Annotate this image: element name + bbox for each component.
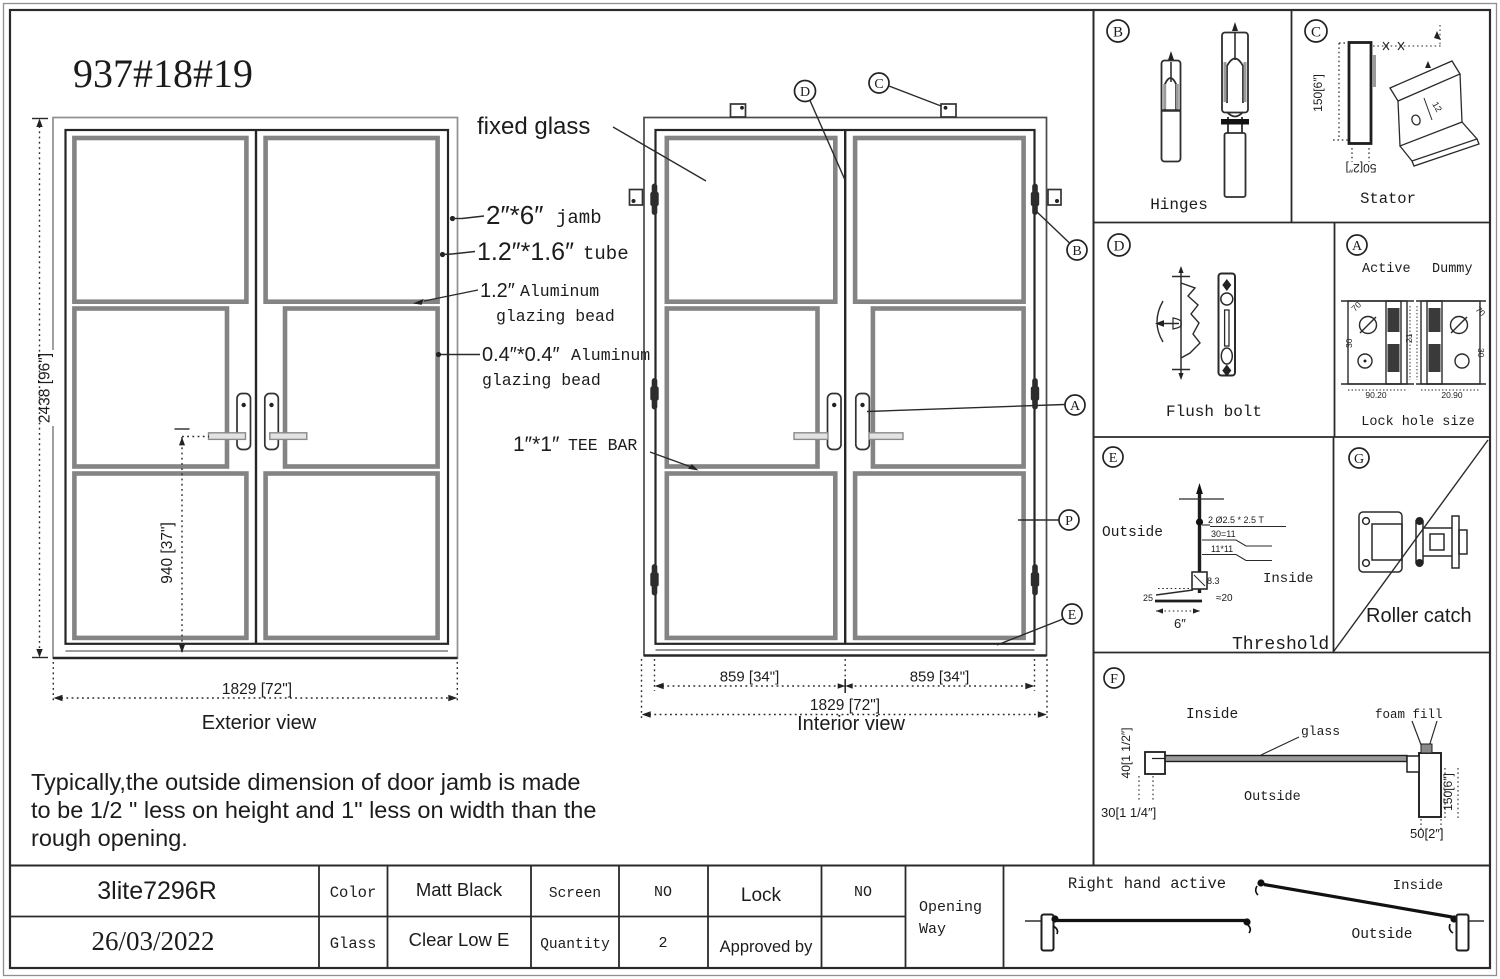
svg-text:859 [34"]: 859 [34"] — [910, 669, 970, 686]
svg-text:20.90: 20.90 — [1441, 390, 1463, 400]
svg-text:A: A — [1070, 399, 1081, 414]
svg-text:Lock hole size: Lock hole size — [1361, 415, 1474, 430]
svg-text:glazing bead: glazing bead — [482, 371, 601, 390]
svg-text:1.2″*1.6″: 1.2″*1.6″ — [477, 238, 574, 266]
svg-text:150[6″]: 150[6″] — [1441, 773, 1455, 811]
svg-text:Matt Black: Matt Black — [416, 879, 503, 900]
svg-text:Right hand active: Right hand active — [1068, 875, 1226, 893]
svg-text:Dummy: Dummy — [1432, 262, 1473, 277]
svg-text:C: C — [1311, 25, 1321, 41]
svg-text:Lock: Lock — [741, 885, 782, 906]
svg-text:2″*6″: 2″*6″ — [486, 200, 543, 230]
svg-text:Outside: Outside — [1102, 525, 1163, 541]
svg-text:D: D — [1114, 239, 1125, 255]
svg-text:11*11: 11*11 — [1211, 544, 1233, 554]
svg-text:Outside: Outside — [1244, 790, 1301, 805]
svg-text:8.3: 8.3 — [1207, 576, 1220, 586]
svg-text:937#18#19: 937#18#19 — [73, 51, 253, 96]
svg-text:50[2″]: 50[2″] — [1410, 826, 1444, 841]
svg-text:≈20: ≈20 — [1216, 593, 1233, 604]
svg-text:Active: Active — [1362, 262, 1411, 277]
svg-text:30=11: 30=11 — [1211, 529, 1236, 539]
svg-text:Exterior view: Exterior view — [202, 712, 317, 734]
svg-text:Approved by: Approved by — [720, 938, 813, 956]
svg-text:Typically,the outside dimensio: Typically,the outside dimension of door … — [31, 769, 581, 795]
svg-text:to be 1/2 " less on height and: to be 1/2 " less on height and 1" less o… — [31, 797, 596, 823]
svg-text:NO: NO — [654, 884, 672, 901]
svg-text:150[6″]: 150[6″] — [1311, 74, 1325, 112]
svg-text:foam fill: foam fill — [1375, 708, 1443, 722]
svg-text:2 Ø2.5 * 2.5 T: 2 Ø2.5 * 2.5 T — [1208, 515, 1264, 525]
svg-text:Opening: Opening — [919, 899, 982, 916]
svg-text:2438 [96"]: 2438 [96"] — [37, 353, 54, 423]
svg-text:25: 25 — [1143, 593, 1153, 603]
svg-text:Way: Way — [919, 921, 946, 938]
svg-text:Roller catch: Roller catch — [1366, 605, 1472, 627]
svg-text:TEE BAR: TEE BAR — [568, 436, 637, 455]
svg-text:3lite7296R: 3lite7296R — [97, 877, 217, 905]
svg-text:1″*1″: 1″*1″ — [513, 433, 560, 456]
svg-text:Inside: Inside — [1186, 707, 1238, 723]
svg-text:6″: 6″ — [1174, 616, 1186, 631]
svg-text:NO: NO — [854, 884, 872, 901]
svg-text:jamb: jamb — [556, 207, 602, 229]
svg-text:Inside: Inside — [1263, 571, 1313, 587]
svg-text:B: B — [1072, 244, 1081, 259]
svg-text:21: 21 — [1404, 333, 1414, 343]
svg-text:E: E — [1109, 451, 1118, 466]
svg-text:P: P — [1065, 514, 1073, 529]
svg-text:Hinges: Hinges — [1150, 196, 1208, 214]
svg-text:2: 2 — [658, 935, 667, 952]
svg-text:E: E — [1068, 608, 1077, 623]
svg-text:Quantity: Quantity — [540, 937, 610, 953]
svg-text:B: B — [1113, 25, 1123, 41]
svg-text:26/03/2022: 26/03/2022 — [91, 926, 214, 956]
svg-text:Flush bolt: Flush bolt — [1166, 403, 1262, 421]
svg-text:1829 [72"]: 1829 [72"] — [810, 697, 880, 714]
svg-text:glass: glass — [1301, 724, 1340, 739]
svg-text:A: A — [1352, 239, 1363, 254]
svg-text:Aluminum: Aluminum — [571, 346, 650, 365]
svg-text:tube: tube — [583, 243, 629, 265]
svg-text:rough opening.: rough opening. — [31, 825, 188, 851]
svg-text:Clear Low E: Clear Low E — [409, 929, 510, 950]
svg-text:Interior view: Interior view — [797, 713, 905, 735]
svg-text:Aluminum: Aluminum — [520, 282, 599, 301]
svg-text:F: F — [1110, 672, 1118, 687]
svg-text:D: D — [800, 85, 810, 100]
svg-text:859 [34"]: 859 [34"] — [720, 669, 780, 686]
svg-text:40[1 1/2″]: 40[1 1/2″] — [1119, 728, 1133, 779]
svg-text:1829 [72"]: 1829 [72"] — [222, 681, 292, 698]
svg-text:90.20: 90.20 — [1365, 390, 1387, 400]
svg-text:glazing bead: glazing bead — [496, 307, 615, 326]
svg-text:Inside: Inside — [1393, 878, 1443, 894]
svg-text:Color: Color — [330, 884, 377, 902]
svg-text:Glass: Glass — [330, 935, 377, 953]
svg-text:0.4″*0.4″: 0.4″*0.4″ — [482, 344, 560, 366]
svg-text:940 [37"]: 940 [37"] — [159, 522, 176, 584]
svg-text:30: 30 — [1344, 338, 1354, 348]
svg-text:30: 30 — [1476, 348, 1486, 358]
svg-text:30[1 1/4″]: 30[1 1/4″] — [1101, 805, 1156, 820]
svg-text:50[2″]: 50[2″] — [1346, 161, 1377, 175]
svg-text:Outside: Outside — [1352, 927, 1413, 943]
svg-text:1.2″: 1.2″ — [480, 280, 515, 302]
svg-text:G: G — [1354, 452, 1364, 467]
svg-text:Threshold: Threshold — [1232, 635, 1329, 655]
svg-text:fixed glass: fixed glass — [477, 113, 590, 140]
svg-text:C: C — [874, 77, 883, 92]
svg-text:Screen: Screen — [549, 886, 601, 902]
svg-text:Stator: Stator — [1360, 190, 1416, 208]
